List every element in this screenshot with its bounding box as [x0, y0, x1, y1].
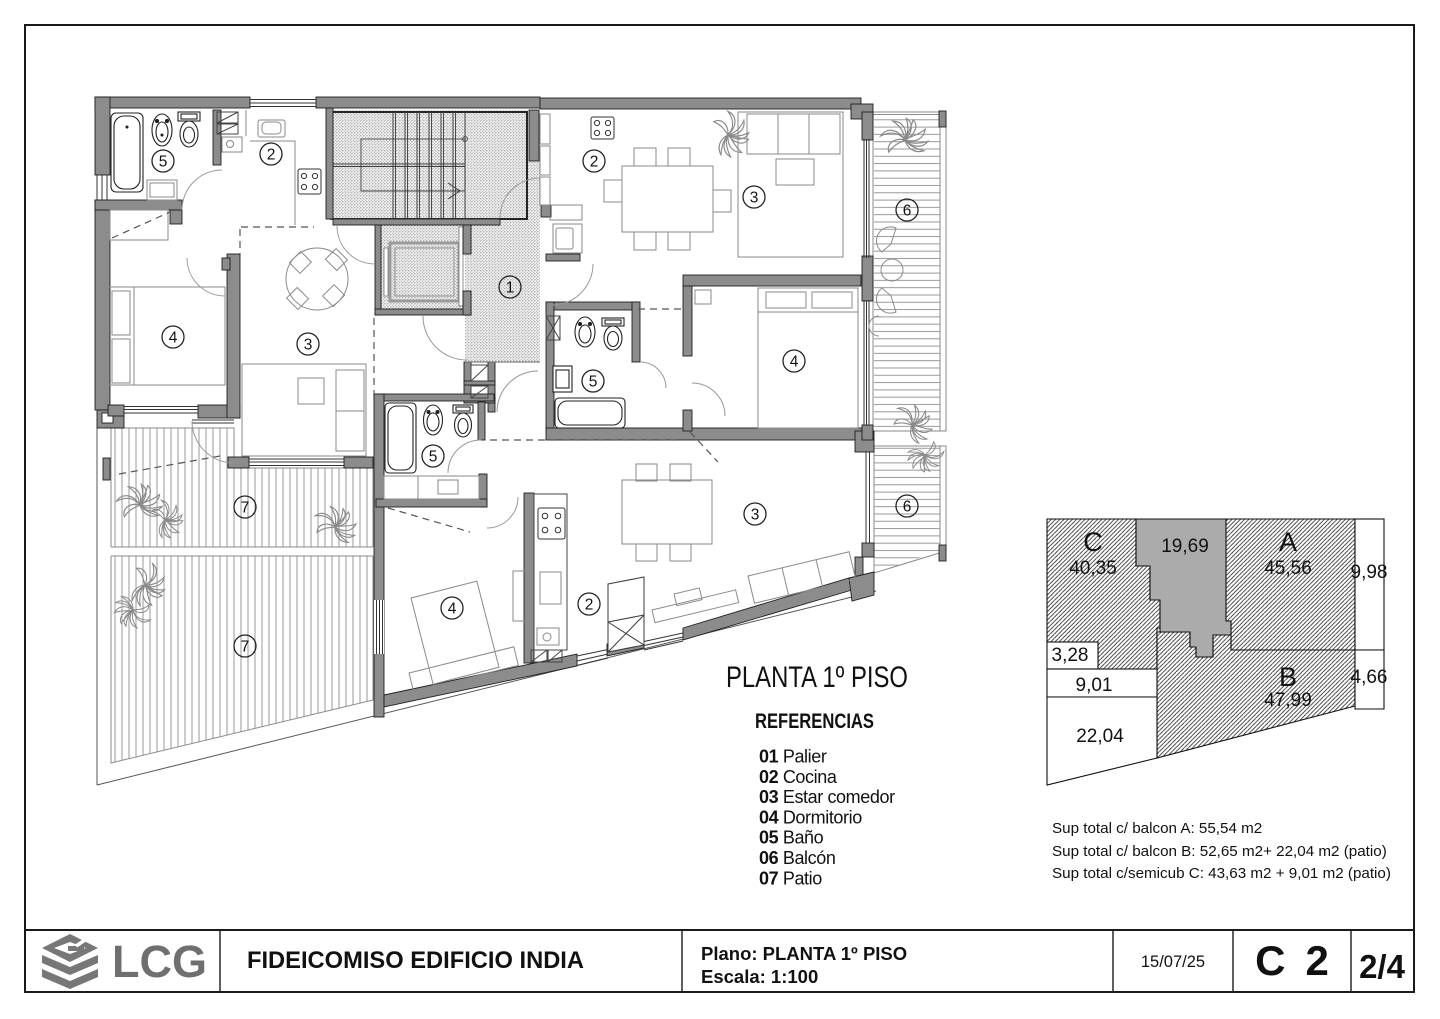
svg-text:9,01: 9,01: [1076, 675, 1113, 696]
svg-text:05 Baño: 05 Baño: [759, 828, 824, 848]
svg-text:4: 4: [790, 354, 799, 371]
svg-text:Sup total c/ balcon A: 55,54: Sup total c/ balcon A: 55,54 m2: [1052, 820, 1262, 837]
svg-text:22,04: 22,04: [1076, 726, 1124, 747]
svg-text:Escala: 1:100: Escala: 1:100: [701, 966, 818, 987]
svg-text:A: A: [1279, 527, 1297, 557]
svg-text:B: B: [1279, 662, 1297, 692]
svg-text:6: 6: [903, 203, 912, 220]
svg-text:REFERENCIAS: REFERENCIAS: [755, 710, 874, 733]
svg-text:2: 2: [585, 597, 594, 614]
svg-text:45,56: 45,56: [1264, 558, 1312, 579]
svg-text:03 Estar comedor: 03 Estar comedor: [759, 787, 895, 807]
svg-text:3: 3: [751, 507, 760, 524]
svg-text:3,28: 3,28: [1052, 645, 1089, 666]
svg-text:LCG: LCG: [112, 936, 207, 987]
svg-text:6: 6: [903, 499, 912, 516]
svg-text:47,99: 47,99: [1264, 690, 1312, 711]
svg-text:2/4: 2/4: [1359, 948, 1406, 985]
svg-text:Plano: PLANTA 1º PISO: Plano: PLANTA 1º PISO: [701, 943, 907, 964]
svg-text:9,98: 9,98: [1351, 562, 1388, 583]
svg-text:Sup total c/ balcon B: 52,65: Sup total c/ balcon B: 52,65 m2+ 22,04 m…: [1052, 843, 1387, 860]
svg-text:4,66: 4,66: [1351, 667, 1388, 688]
svg-text:19,69: 19,69: [1161, 536, 1209, 557]
svg-text:15/07/25: 15/07/25: [1141, 953, 1205, 971]
svg-text:Sup total c/semicub C: 43,63: Sup total c/semicub C: 43,63 m2 + 9,01 m…: [1052, 865, 1391, 882]
svg-text:2: 2: [267, 147, 276, 164]
svg-text:04 Dormitorio: 04 Dormitorio: [759, 807, 862, 827]
svg-text:7: 7: [241, 639, 250, 656]
svg-text:7: 7: [241, 500, 250, 517]
svg-text:4: 4: [169, 330, 178, 347]
svg-text:2: 2: [590, 154, 599, 171]
svg-text:3: 3: [750, 190, 759, 207]
svg-text:1: 1: [506, 280, 515, 297]
svg-text:06 Balcón: 06 Balcón: [759, 848, 835, 868]
svg-text:5: 5: [589, 374, 598, 391]
svg-text:01 Palier: 01 Palier: [759, 747, 827, 767]
svg-text:3: 3: [304, 337, 313, 354]
svg-text:5: 5: [159, 154, 168, 171]
svg-text:02 Cocina: 02 Cocina: [759, 767, 838, 787]
svg-text:4: 4: [448, 601, 457, 618]
svg-text:5: 5: [429, 449, 438, 466]
svg-text:C: C: [1083, 527, 1103, 557]
svg-text:C 2: C 2: [1255, 937, 1329, 984]
svg-text:07 Patio: 07 Patio: [759, 868, 822, 888]
svg-text:FIDEICOMISO EDIFICIO INDIA: FIDEICOMISO EDIFICIO INDIA: [247, 947, 584, 974]
svg-text:40,35: 40,35: [1069, 558, 1117, 579]
svg-text:PLANTA 1º PISO: PLANTA 1º PISO: [726, 661, 908, 694]
